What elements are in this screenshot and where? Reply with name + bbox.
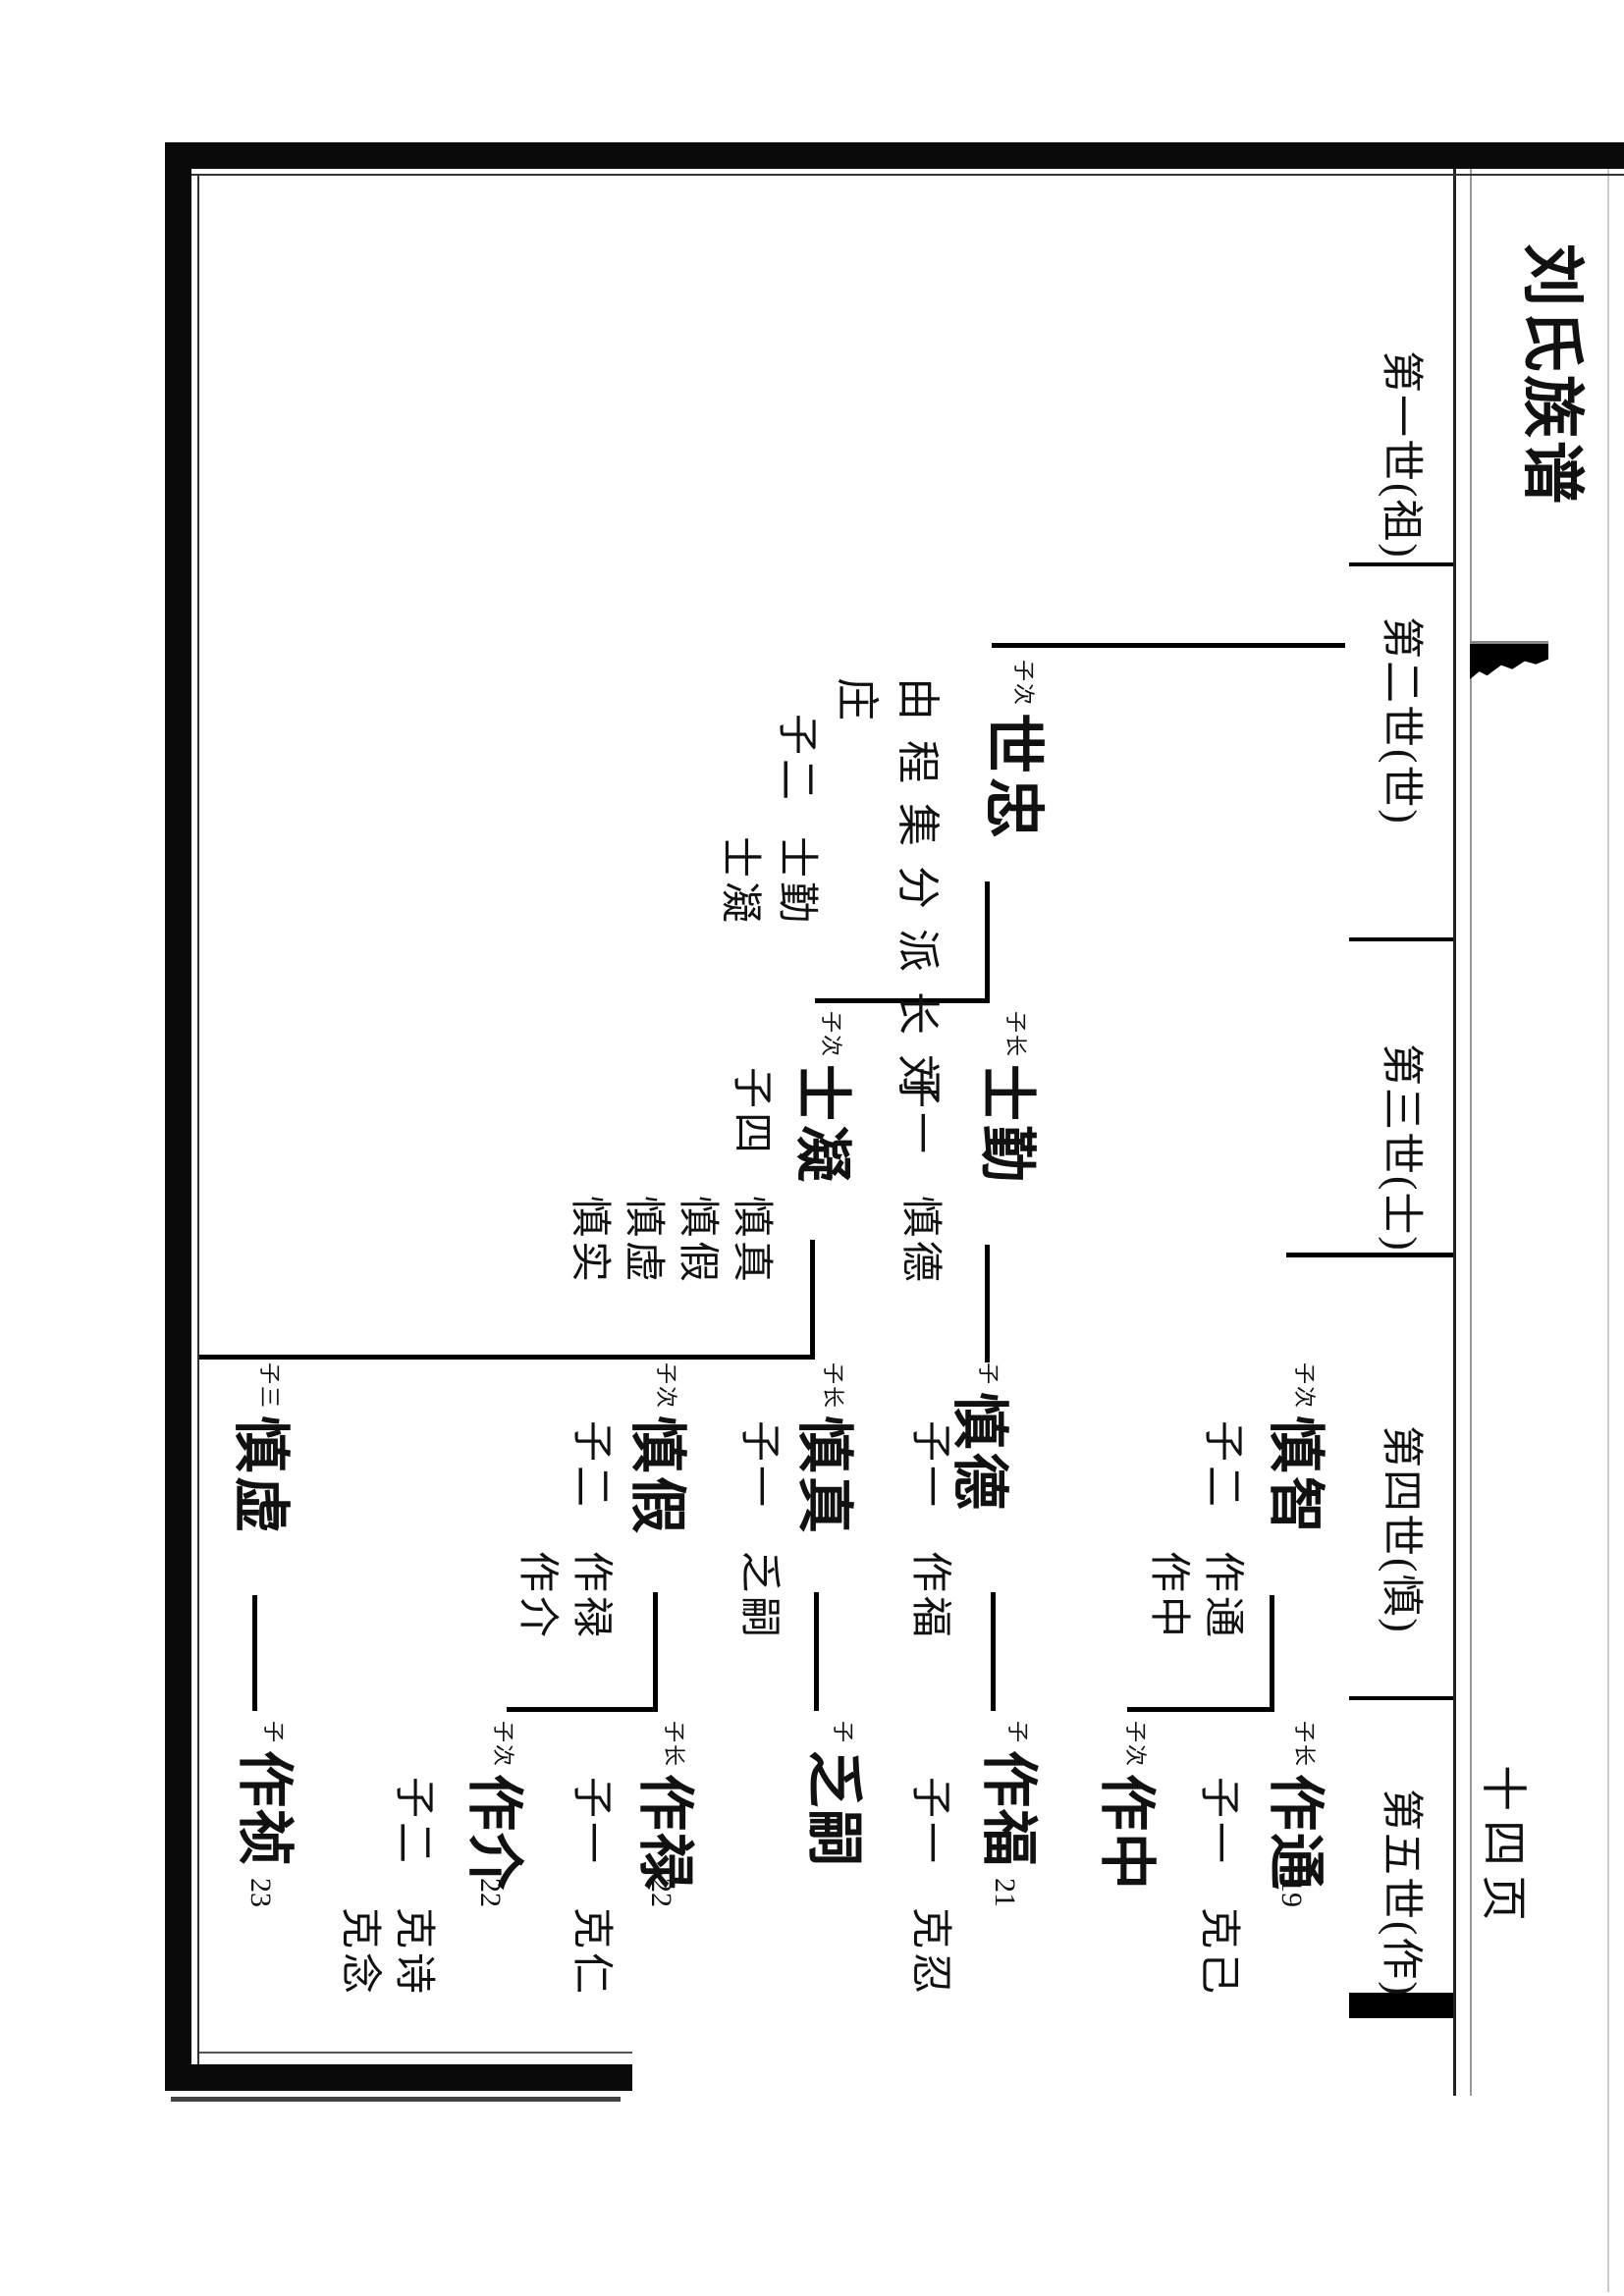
person-name: 作介	[465, 1774, 522, 1892]
children-count: 子四	[731, 1067, 772, 1157]
birth-order-label: 子次	[1290, 1362, 1322, 1410]
generation-header-2: 第二世(世)	[1375, 616, 1435, 826]
inner-rule-right	[199, 2052, 632, 2054]
children-count: 子一	[909, 1777, 950, 1867]
birth-order-label: 子长	[660, 1721, 691, 1768]
page-number: 十四页	[1474, 1765, 1542, 1930]
page-edge-line	[1607, 142, 1609, 2292]
children-count: 子一	[570, 1777, 612, 1867]
connector-shining-children-bus	[199, 1355, 815, 1360]
child-name: 慎实	[568, 1196, 610, 1286]
page-edge-shadow	[171, 2097, 621, 2102]
children-count: 子二	[1202, 1420, 1243, 1511]
person-node-shende: 子 慎德	[950, 1362, 1007, 1514]
person-node-fasi: 子 乏嗣	[805, 1721, 862, 1868]
children-count: 子一	[909, 1420, 950, 1511]
connector-shenjia-children-v	[507, 1707, 658, 1712]
generation-number: 22	[644, 1878, 677, 1907]
person-node-shiqin: 子长 士勤	[978, 1011, 1035, 1186]
birth-order-label: 子次	[652, 1362, 683, 1410]
title-row-rule-thin	[1470, 142, 1472, 2096]
person-node-zuozhong: 子次 作中	[1098, 1721, 1155, 1892]
child-name: 克诗	[393, 1907, 434, 1998]
person-name: 慎假	[628, 1415, 685, 1537]
birth-order-label: 子长	[1290, 1721, 1322, 1768]
descent-line-shenzhi	[1286, 1253, 1453, 1257]
person-node-zuozhen: 子 作祯	[236, 1721, 293, 1868]
page-border-bottom	[165, 142, 191, 2091]
connector-shenxu-zuozhen	[252, 1595, 257, 1711]
generation-header-3: 第三世(士)	[1375, 1043, 1435, 1253]
birth-order-label: 子	[1003, 1721, 1035, 1744]
children-count: 子二	[570, 1420, 612, 1511]
generation-number: 22	[473, 1878, 507, 1907]
generation-header-5: 第五世(作)	[1375, 1789, 1435, 1998]
inner-rule-left	[191, 174, 1624, 176]
connector-shenzhi-children-v	[1127, 1707, 1274, 1712]
person-node-shenzhi: 子次 慎智	[1267, 1362, 1324, 1537]
page-title: 刘氏族谱	[1512, 243, 1602, 507]
page-border-left	[165, 142, 1624, 169]
person-node-zuojie: 子次 作介	[465, 1721, 522, 1892]
descent-line-shizhong	[992, 643, 1345, 648]
person-node-shenzhen: 子长 慎真	[795, 1362, 852, 1537]
birth-order-label: 子长	[819, 1362, 850, 1410]
child-name: 慎假	[677, 1196, 718, 1286]
child-name: 士凝	[719, 836, 760, 927]
origin-annotation-line1: 由程集分派长刘	[895, 677, 939, 1117]
person-name: 慎智	[1267, 1415, 1324, 1537]
birth-order-label: 子	[259, 1721, 291, 1744]
children-count: 子二	[776, 714, 817, 804]
person-name: 作祯	[236, 1750, 293, 1868]
person-name: 慎真	[795, 1415, 852, 1537]
birth-order-label: 子长	[1001, 1011, 1033, 1058]
children-count: 子二	[393, 1777, 434, 1867]
generation-number: 19	[1274, 1878, 1308, 1907]
person-node-shining: 子次 士凝	[793, 1011, 850, 1186]
child-name: 克念	[339, 1907, 380, 1998]
child-name: 乏嗣	[738, 1551, 780, 1641]
connector-shining-children-h	[810, 1240, 815, 1358]
birth-order-label: 子	[829, 1721, 860, 1744]
person-name: 士凝	[793, 1064, 850, 1186]
child-name: 作福	[909, 1551, 950, 1641]
rotated-page-content: 刘氏族谱 十四页 第一世(祖) 第二世(世) 第三世(士) 第四世(慎) 第五世…	[0, 0, 1624, 2296]
child-name: 克己	[1198, 1907, 1239, 1998]
birth-order-label: 子次	[489, 1721, 520, 1768]
person-node-shizhong: 子次 世忠	[982, 660, 1043, 842]
person-node-shenxu: 子三 慎虚	[232, 1362, 289, 1537]
person-name: 作福	[980, 1750, 1037, 1868]
child-name: 慎真	[731, 1196, 772, 1286]
person-node-zuolu: 子长 作禄	[636, 1721, 693, 1892]
person-name: 作禄	[636, 1774, 693, 1892]
page-border-right	[165, 2064, 632, 2091]
connector-shenzhen-fasi	[814, 1592, 819, 1711]
birth-order-label: 子次	[1121, 1721, 1153, 1768]
child-name: 慎德	[899, 1196, 941, 1286]
person-name: 世忠	[982, 713, 1043, 842]
inner-rule-bottom	[197, 174, 199, 2064]
origin-annotation-line2: 庄	[835, 677, 878, 740]
birth-order-label: 子	[974, 1362, 1005, 1386]
title-row-rule	[1453, 142, 1456, 2096]
generation-number: 23	[244, 1878, 277, 1907]
generation-divider-1	[1349, 562, 1453, 566]
child-name: 作介	[516, 1551, 558, 1641]
child-name: 克忍	[909, 1907, 950, 1998]
bleed-tab-mark	[1470, 641, 1548, 681]
person-name: 作中	[1098, 1774, 1155, 1892]
child-name: 士勤	[776, 836, 817, 927]
children-count: 子一	[738, 1420, 780, 1511]
person-node-zuofu: 子 作福	[980, 1721, 1037, 1868]
birth-order-label: 子次	[817, 1011, 848, 1058]
person-node-shenjia: 子次 慎假	[628, 1362, 685, 1537]
child-name: 作通	[1202, 1551, 1243, 1641]
scanned-genealogy-page: 刘氏族谱 十四页 第一世(祖) 第二世(世) 第三世(士) 第四世(慎) 第五世…	[0, 0, 1624, 2296]
child-name: 作禄	[570, 1551, 612, 1641]
generation-divider-2	[1349, 937, 1453, 941]
child-name: 作中	[1148, 1551, 1189, 1641]
children-count: 子一	[899, 1067, 941, 1157]
children-count: 子一	[1198, 1777, 1239, 1867]
person-name: 乏嗣	[805, 1750, 862, 1868]
person-name: 士勤	[978, 1064, 1035, 1186]
person-node-zuotong: 子长 作通	[1267, 1721, 1324, 1892]
generation-header-4: 第四世(慎)	[1375, 1425, 1435, 1634]
generation-header-1: 第一世(祖)	[1375, 350, 1435, 560]
connector-shenzhi-children-h	[1270, 1595, 1274, 1711]
person-name: 慎德	[950, 1392, 1007, 1514]
connector-shizhong-children-h	[985, 881, 990, 1003]
generation-divider-4	[1349, 1696, 1453, 1700]
child-name: 慎虚	[623, 1196, 664, 1286]
connector-shiqin-shende	[985, 1245, 990, 1362]
person-name: 作通	[1267, 1774, 1324, 1892]
connector-shende-zuofu	[991, 1592, 996, 1711]
child-name: 克仁	[570, 1907, 612, 1998]
birth-order-label: 子三	[255, 1362, 287, 1410]
generation-number: 21	[988, 1878, 1021, 1907]
connector-shenjia-children-h	[653, 1592, 658, 1711]
person-name: 慎虚	[232, 1415, 289, 1537]
birth-order-label: 子次	[1009, 660, 1041, 707]
